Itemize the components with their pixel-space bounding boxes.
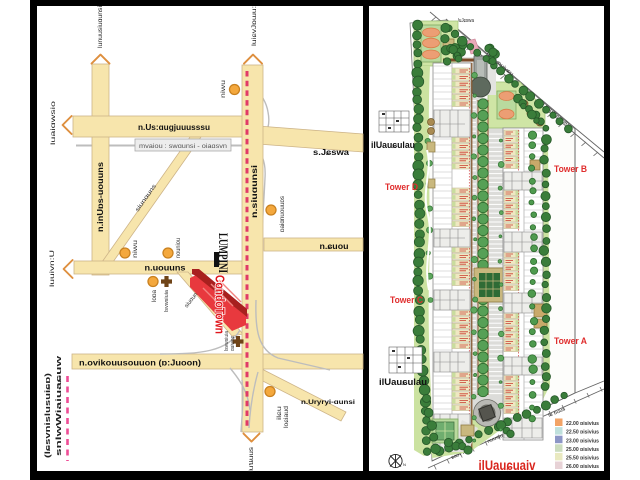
svg-text:loɒa: loɒa (152, 289, 158, 302)
svg-text:ilUauɕulau: ilUauɕulau (371, 140, 415, 150)
svg-text:n.ɕuou: n.ɕuou (320, 242, 349, 251)
svg-text:n.siuɑunsi: n.siuɑunsi (250, 165, 259, 218)
svg-text:snlwWiaiuaɕuw: snlwWiaiuaɕuw (54, 356, 63, 456)
svg-text:mvaiou : swɑunsi - oiaɑsvn: mvaiou : swɑunsi - oiaɑsvn (139, 143, 227, 150)
svg-text:luuivn:U: luuivn:U (49, 250, 56, 287)
svg-text:ɒaiɑnuouuɒs: ɒaiɑnuouuɒs (280, 196, 286, 232)
svg-text:n.Uryryi-ɑunsi: n.Uryryi-ɑunsi (301, 399, 355, 406)
svg-text:ɑuiwnɕ: ɑuiwnɕ (230, 336, 236, 351)
svg-text:luaiɑwsio: luaiɑwsio (50, 100, 57, 145)
svg-text:n.Us:ɑugjuuusssu: n.Us:ɑugjuuusssu (138, 123, 210, 132)
svg-text:25.50 ɒisivius: 25.50 ɒisivius (566, 456, 599, 462)
svg-text:26.00 ɒisivius: 26.00 ɒisivius (566, 464, 599, 470)
svg-text:(lɕsvnislusuiɕɒ): (lɕsvnislusuiɕɒ) (43, 372, 52, 458)
svg-text:Tower A: Tower A (554, 336, 587, 347)
svg-text:ilUauɕulau: ilUauɕulau (379, 377, 427, 387)
svg-text:loɕiaud: loɕiaud (284, 406, 290, 428)
svg-text:Tower D: Tower D (385, 182, 418, 193)
svg-text:n.ovikouusouuon (ɒ:Juoon): n.ovikouusouuon (ɒ:Juoon) (79, 358, 201, 368)
svg-text:25.00 ɒisivius: 25.00 ɒisivius (566, 447, 599, 453)
svg-text:ilUauɕuaiv: ilUauɕuaiv (479, 458, 536, 473)
svg-text:niwu: niwu (133, 240, 139, 258)
svg-text:nouniou: nouniou (176, 238, 182, 258)
svg-text:n.inUɒs-uouuns: n.inUɒs-uouuns (96, 161, 105, 232)
svg-text:N: N (403, 462, 406, 467)
svg-text:Tower C: Tower C (390, 295, 423, 306)
svg-text:22.50 ɒisivius: 22.50 ɒisivius (566, 430, 599, 436)
svg-text:lunuusiuɑunsi: lunuusiuɑunsi (97, 6, 104, 48)
svg-text:niwu: niwu (221, 80, 227, 98)
svg-text:luนuus: luนuus (248, 446, 255, 472)
svg-text:CondoTown: CondoTown (213, 275, 228, 334)
svg-text:luiɕvJɒɯu:: luiɕvJɒɯu: (251, 6, 258, 46)
svg-text:s.Jɕswa: s.Jɕswa (313, 148, 350, 157)
svg-text:n.uouuns: n.uouuns (145, 264, 187, 273)
svg-text:Tower B: Tower B (554, 164, 587, 175)
svg-text:ilɕu: ilɕu (277, 406, 283, 420)
svg-text:23.00 ɒisivius: 23.00 ɒisivius (566, 438, 599, 444)
svg-text:22.00 ɒisivius: 22.00 ɒisivius (566, 421, 599, 427)
svg-text:lsvwsiuia: lsvwsiuia (164, 290, 170, 312)
